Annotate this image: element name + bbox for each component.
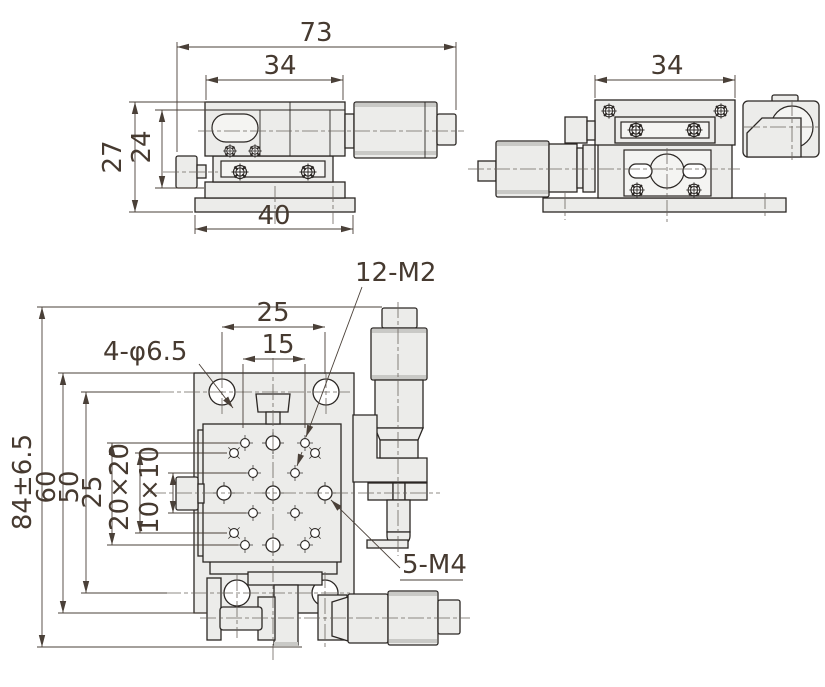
clamp-stem (197, 165, 206, 178)
technical-drawing: 73 34 27 24 40 (0, 0, 825, 687)
side-block (565, 117, 587, 143)
drive-cylinder (212, 114, 258, 142)
drawing-canvas: 73 34 27 24 40 (0, 0, 825, 687)
dim-label: 15 (261, 330, 294, 360)
side-block-neck (587, 121, 595, 140)
slot (629, 164, 652, 178)
dim-label: 10×10 (135, 446, 165, 534)
dim-label: 34 (650, 51, 683, 81)
dim-label: 24 (127, 130, 157, 163)
dim-label: 25 (256, 298, 289, 328)
dim-carriage-width: 34 (206, 51, 343, 100)
front-view: 73 34 27 24 40 (98, 18, 464, 234)
dim-label: 27 (98, 140, 128, 173)
side-view: 34 (468, 51, 822, 222)
clamp-stem (198, 484, 204, 503)
plan-view: 84±6.5 60 50 25 20×20 10×10 25 (8, 258, 470, 660)
dim-label: 20×20 (105, 443, 135, 531)
clamp-knob (176, 477, 198, 510)
slot (683, 164, 706, 178)
base-plate (543, 198, 786, 212)
callout-label: 4-φ6.5 (103, 337, 187, 367)
micrometer-front (354, 102, 456, 158)
dim-label: 34 (263, 51, 296, 81)
dim-carriage-width: 34 (595, 51, 735, 98)
dim-label: 40 (257, 201, 290, 231)
callout-label: 12-M2 (355, 258, 436, 288)
bracket-end (743, 95, 819, 157)
callout-label: 5-M4 (402, 550, 467, 580)
dim-label: 25 (78, 475, 108, 508)
micrometer-vertical (353, 308, 427, 548)
dim-label: 73 (299, 18, 332, 48)
